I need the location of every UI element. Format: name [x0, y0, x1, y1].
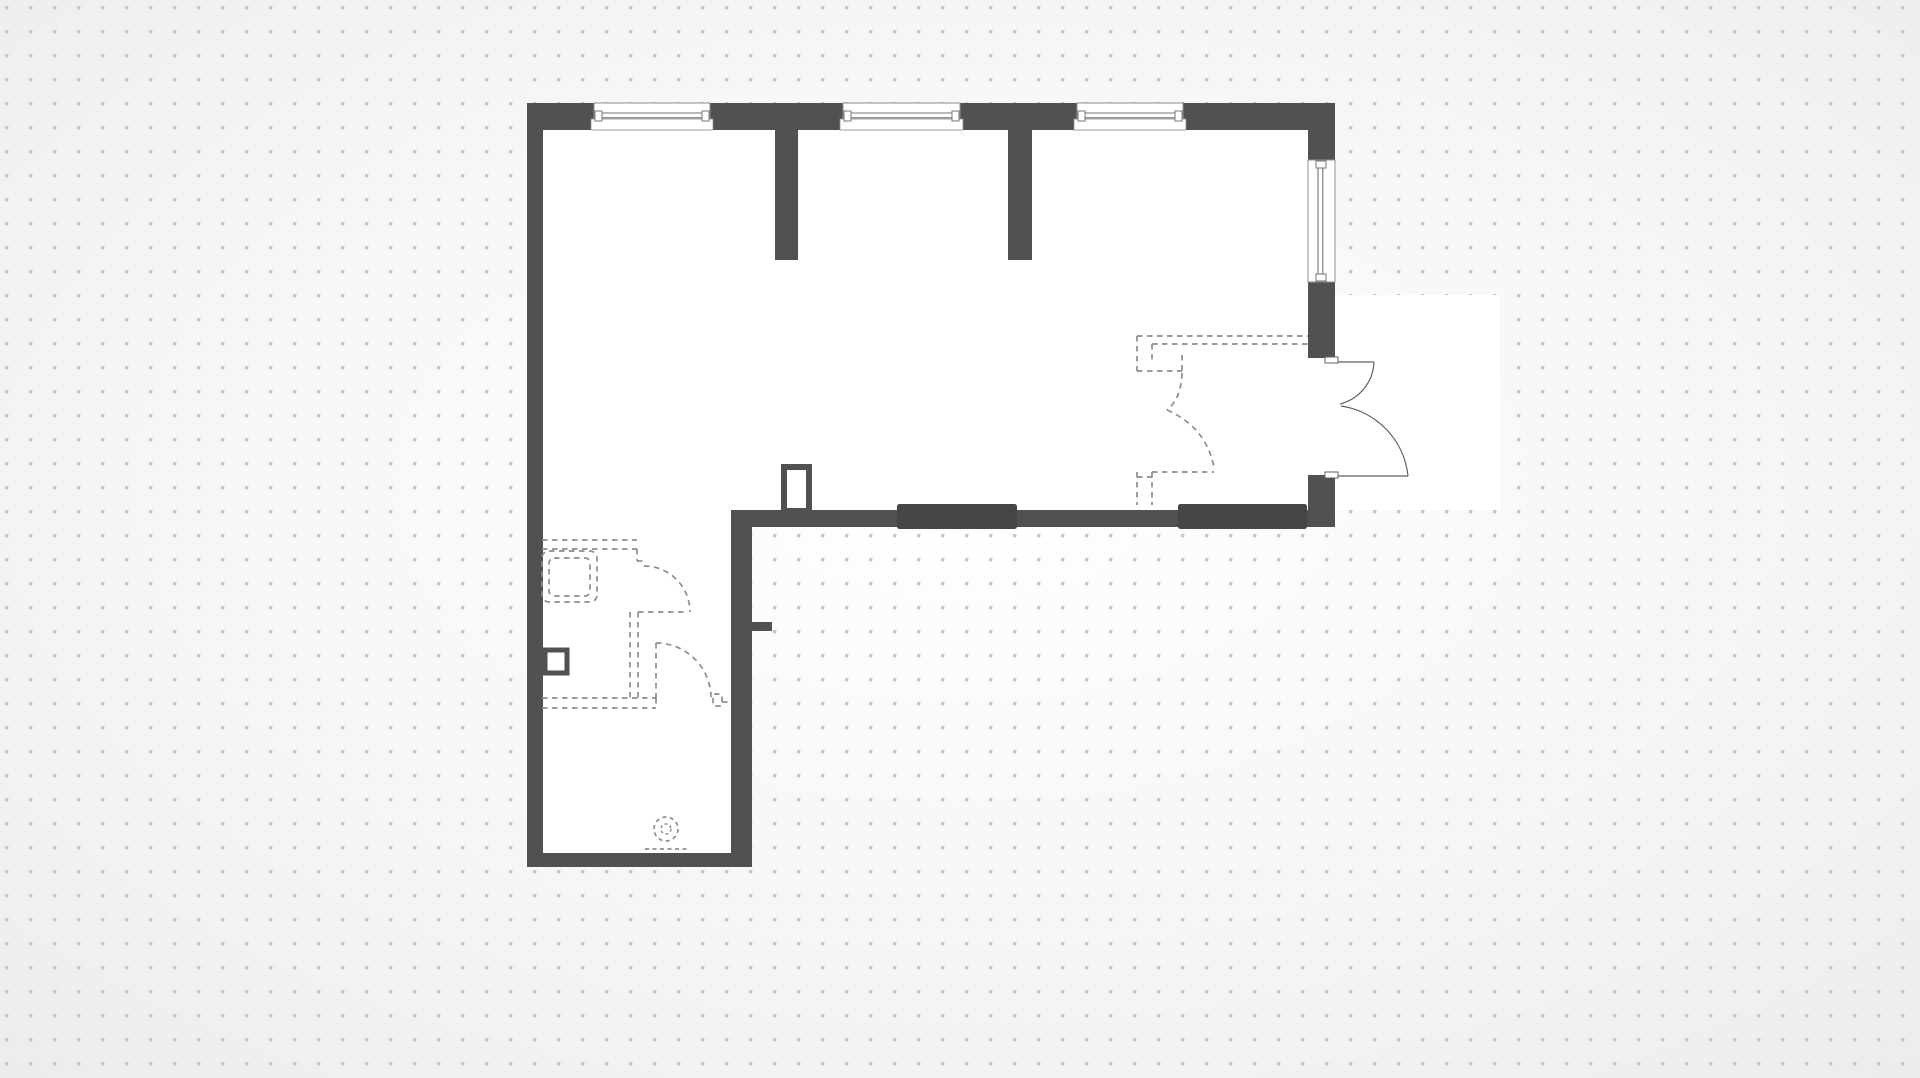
wall-segment-dark-1[interactable] — [897, 504, 1017, 529]
wall-interior-vertical[interactable] — [731, 510, 752, 867]
window-top-2[interactable] — [840, 103, 963, 130]
window-end-cap — [1175, 111, 1182, 121]
door-jamb-cap — [1325, 472, 1338, 478]
window-end-cap — [702, 111, 709, 121]
door-jamb-cap — [1325, 357, 1338, 363]
wall-bottom-lower[interactable] — [527, 853, 752, 867]
window-frame — [1308, 160, 1335, 282]
partition-stub-2[interactable] — [1008, 130, 1032, 260]
wall-interior-stub[interactable] — [752, 622, 772, 631]
window-end-cap — [952, 111, 959, 121]
floor-plan-svg — [0, 0, 1920, 1078]
window-top-1[interactable] — [591, 103, 713, 130]
exterior-white-halo — [1330, 295, 1500, 510]
window-end-cap — [595, 111, 602, 121]
door-swing-halo — [1330, 295, 1500, 510]
window-sill — [591, 119, 713, 130]
window-end-cap — [1316, 161, 1326, 168]
window-sill — [840, 119, 963, 130]
window-right[interactable] — [1308, 160, 1335, 282]
floor-plan-editor-canvas[interactable] — [0, 0, 1920, 1078]
window-end-cap — [1078, 111, 1085, 121]
partition-stub-1[interactable] — [775, 130, 798, 260]
wall-right-lower[interactable] — [1308, 475, 1335, 527]
wall-left[interactable] — [527, 103, 543, 867]
wall-niche[interactable] — [545, 650, 567, 673]
window-end-cap — [1316, 274, 1326, 281]
window-top-3[interactable] — [1074, 103, 1186, 130]
window-end-cap — [844, 111, 851, 121]
door-frame-column[interactable] — [784, 467, 809, 511]
window-sill — [1074, 119, 1186, 130]
wall-segment-dark-2[interactable] — [1178, 504, 1307, 529]
